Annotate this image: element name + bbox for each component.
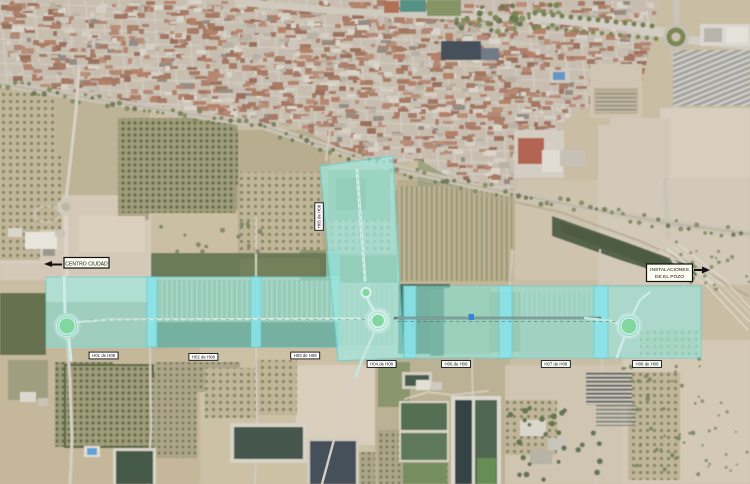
svg-text:H04 de H08: H04 de H08: [370, 362, 394, 367]
svg-text:H02 de H08: H02 de H08: [192, 354, 216, 359]
svg-text:DE EL POZO: DE EL POZO: [655, 274, 684, 280]
svg-text:H08 de H08: H08 de H08: [636, 362, 660, 367]
svg-text:H07 de H08: H07 de H08: [544, 362, 568, 367]
svg-text:INSTALACIONES: INSTALACIONES: [650, 267, 690, 273]
svg-text:H03 de H08: H03 de H08: [294, 353, 318, 358]
svg-text:H01 de H08: H01 de H08: [92, 353, 116, 358]
svg-text:H06 de H08: H06 de H08: [445, 362, 469, 367]
svg-text:H05 de H08: H05 de H08: [317, 204, 322, 228]
svg-text:CENTRO CIUDAD: CENTRO CIUDAD: [65, 261, 108, 267]
